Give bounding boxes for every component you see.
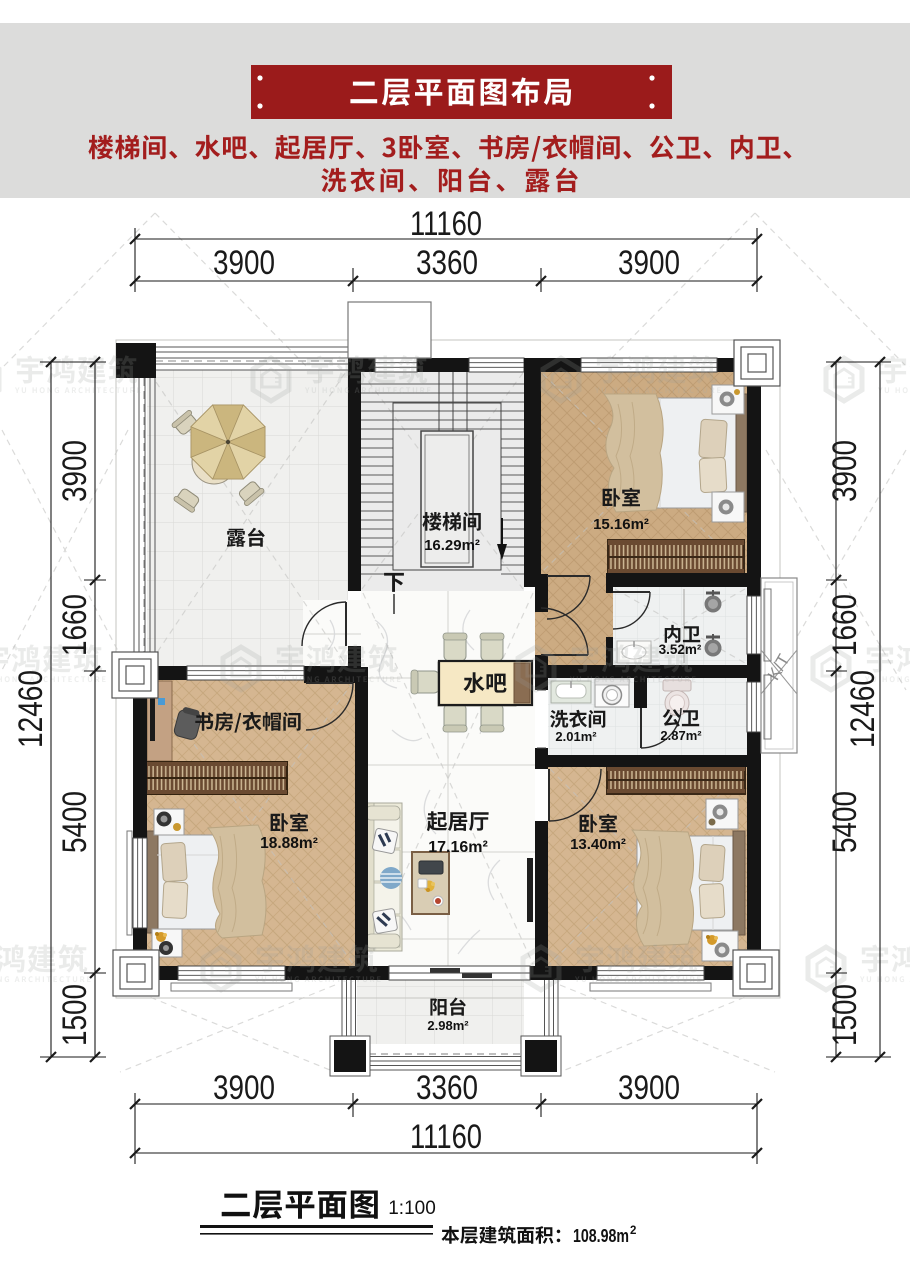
svg-text:5400: 5400 xyxy=(56,791,94,853)
svg-text:11160: 11160 xyxy=(410,205,482,243)
svg-text:13.40m²: 13.40m² xyxy=(570,836,626,853)
svg-text:3360: 3360 xyxy=(416,1069,478,1107)
svg-text:2.98m²: 2.98m² xyxy=(427,1018,469,1033)
svg-text:3900: 3900 xyxy=(213,1069,275,1107)
svg-text:108.98m: 108.98m xyxy=(573,1225,629,1246)
svg-text:1:100: 1:100 xyxy=(388,1198,436,1219)
svg-text:1500: 1500 xyxy=(826,984,864,1046)
svg-text:1660: 1660 xyxy=(826,594,864,656)
svg-text:3900: 3900 xyxy=(56,440,94,502)
svg-text:17.16m²: 17.16m² xyxy=(428,839,488,856)
svg-text:3900: 3900 xyxy=(213,244,275,282)
svg-text:5400: 5400 xyxy=(826,791,864,853)
svg-text:1660: 1660 xyxy=(56,594,94,656)
svg-text:2.01m²: 2.01m² xyxy=(555,729,597,744)
svg-text:3900: 3900 xyxy=(618,1069,680,1107)
svg-text:16.29m²: 16.29m² xyxy=(424,537,480,554)
svg-text:3.52m²: 3.52m² xyxy=(659,642,702,657)
svg-text:15.16m²: 15.16m² xyxy=(593,516,649,533)
svg-text:3900: 3900 xyxy=(618,244,680,282)
svg-text:12460: 12460 xyxy=(12,670,50,748)
svg-text:12460: 12460 xyxy=(844,670,882,748)
svg-text:3900: 3900 xyxy=(826,440,864,502)
svg-text:18.88m²: 18.88m² xyxy=(260,835,318,852)
svg-text:1500: 1500 xyxy=(56,984,94,1046)
svg-text:11160: 11160 xyxy=(410,1118,482,1156)
svg-text:3360: 3360 xyxy=(416,244,478,282)
svg-text:2: 2 xyxy=(630,1225,636,1237)
svg-text:2.87m²: 2.87m² xyxy=(660,728,702,743)
